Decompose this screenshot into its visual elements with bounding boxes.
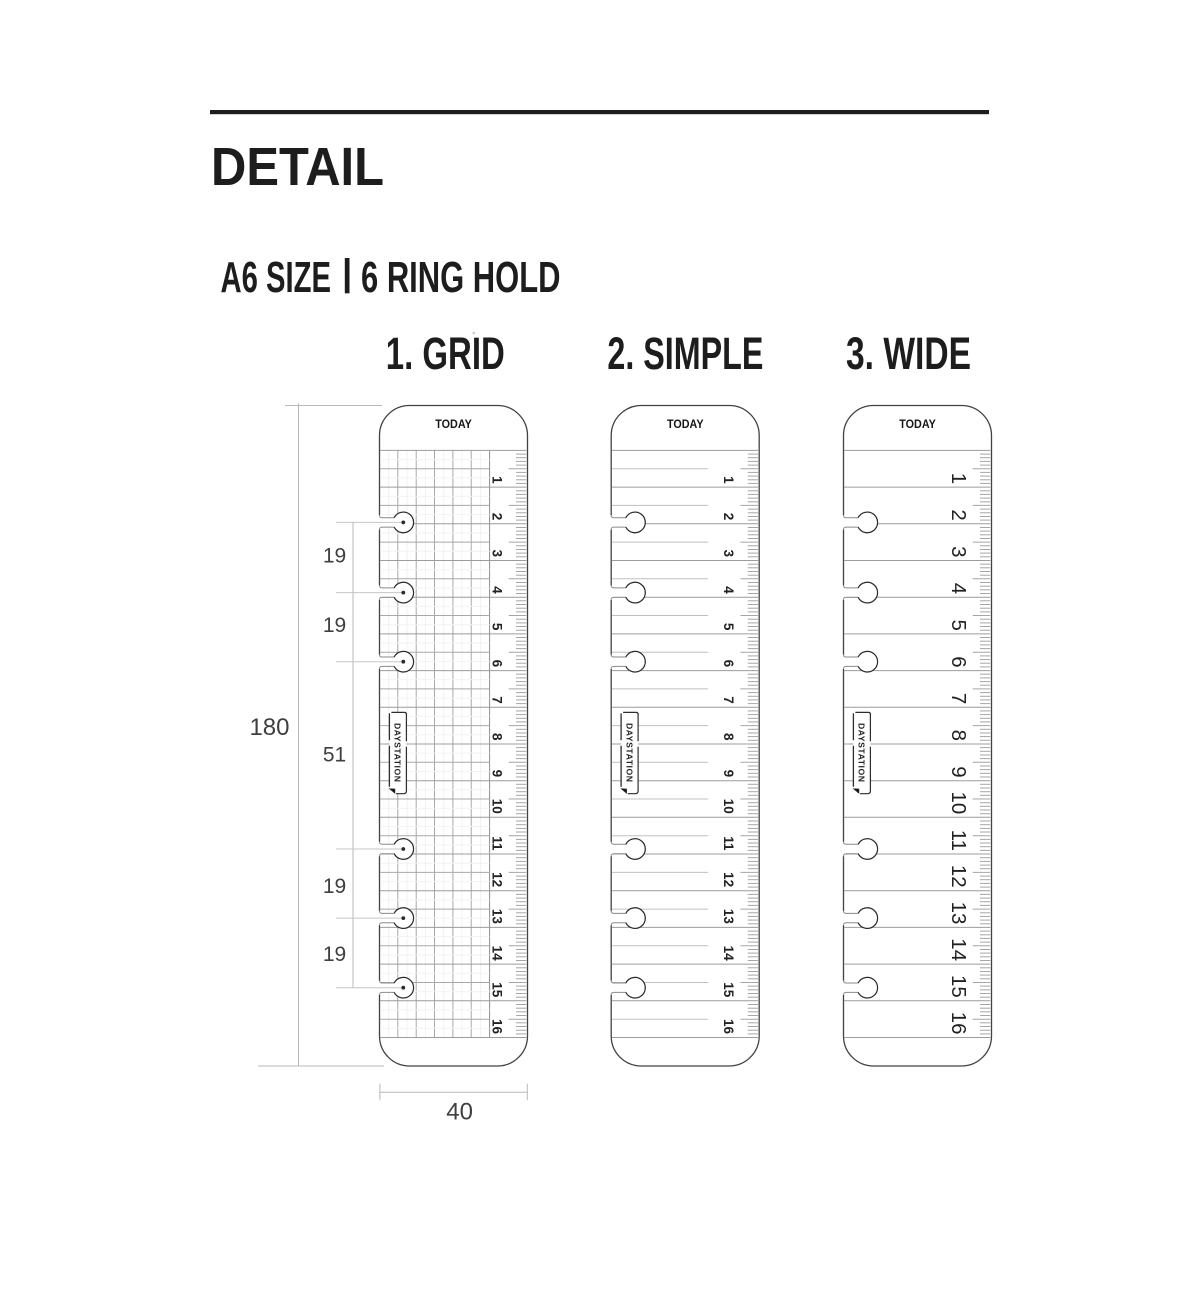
svg-text:16: 16	[947, 1012, 970, 1035]
svg-text:3: 3	[489, 549, 504, 557]
svg-text:15: 15	[947, 975, 970, 998]
svg-text:1: 1	[489, 476, 504, 484]
svg-text:1: 1	[721, 476, 736, 484]
svg-text:7: 7	[489, 696, 504, 704]
svg-text:A6 SIZE: A6 SIZE	[221, 253, 332, 302]
svg-text:4: 4	[947, 583, 970, 594]
svg-text:40: 40	[446, 1099, 473, 1126]
svg-text:15: 15	[721, 982, 736, 998]
svg-text:6: 6	[721, 660, 736, 668]
svg-text:11: 11	[947, 830, 970, 851]
svg-text:7: 7	[721, 696, 736, 704]
svg-text:9: 9	[721, 770, 736, 778]
svg-text:19: 19	[323, 943, 346, 966]
svg-text:TODAY: TODAY	[435, 417, 472, 431]
svg-text:51: 51	[323, 744, 346, 767]
svg-text:2: 2	[721, 513, 736, 521]
svg-text:3: 3	[721, 549, 736, 557]
svg-text:DAYSTATION: DAYSTATION	[393, 723, 403, 782]
svg-text:16: 16	[489, 1019, 504, 1035]
svg-text:4: 4	[721, 586, 736, 594]
svg-text:11: 11	[721, 836, 736, 851]
svg-text:12: 12	[489, 872, 504, 887]
svg-text:6: 6	[947, 656, 970, 667]
svg-text:5: 5	[947, 619, 970, 630]
svg-text:9: 9	[489, 770, 504, 778]
svg-text:TODAY: TODAY	[899, 417, 936, 431]
svg-text:3. WIDE: 3. WIDE	[846, 328, 971, 379]
svg-text:6 RING HOLD: 6 RING HOLD	[361, 253, 561, 302]
svg-text:14: 14	[489, 946, 504, 962]
svg-text:8: 8	[489, 733, 504, 741]
svg-text:2: 2	[947, 509, 970, 520]
svg-text:14: 14	[721, 946, 736, 962]
svg-text:15: 15	[489, 982, 504, 998]
svg-text:5: 5	[721, 623, 736, 631]
svg-text:TODAY: TODAY	[667, 417, 704, 431]
svg-text:DETAIL: DETAIL	[211, 137, 384, 197]
svg-text:1: 1	[947, 473, 970, 484]
svg-text:DAYSTATION: DAYSTATION	[857, 723, 867, 782]
svg-text:180: 180	[249, 714, 289, 741]
svg-text:3: 3	[947, 546, 970, 557]
svg-text:10: 10	[721, 799, 736, 814]
svg-text:19: 19	[323, 875, 346, 898]
svg-text:8: 8	[947, 730, 970, 741]
svg-text:19: 19	[323, 614, 346, 637]
svg-text:8: 8	[721, 733, 736, 741]
svg-text:10: 10	[489, 799, 504, 814]
svg-text:6: 6	[489, 660, 504, 668]
svg-text:DAYSTATION: DAYSTATION	[624, 723, 634, 782]
svg-text:19: 19	[323, 545, 346, 568]
svg-text:2. SIMPLE: 2. SIMPLE	[607, 328, 763, 379]
svg-text:10: 10	[947, 791, 970, 814]
svg-text:11: 11	[489, 836, 504, 851]
svg-text:7: 7	[947, 693, 970, 704]
svg-text:12: 12	[721, 872, 736, 887]
svg-text:12: 12	[947, 865, 970, 888]
svg-text:2: 2	[489, 513, 504, 521]
svg-text:4: 4	[489, 586, 504, 594]
svg-text:13: 13	[721, 909, 736, 925]
svg-text:13: 13	[489, 909, 504, 925]
svg-text:9: 9	[947, 766, 970, 777]
svg-text:5: 5	[489, 623, 504, 631]
svg-text:14: 14	[947, 938, 970, 961]
svg-text:16: 16	[721, 1019, 736, 1035]
svg-text:1. GRID: 1. GRID	[386, 328, 505, 379]
svg-text:13: 13	[947, 902, 970, 925]
